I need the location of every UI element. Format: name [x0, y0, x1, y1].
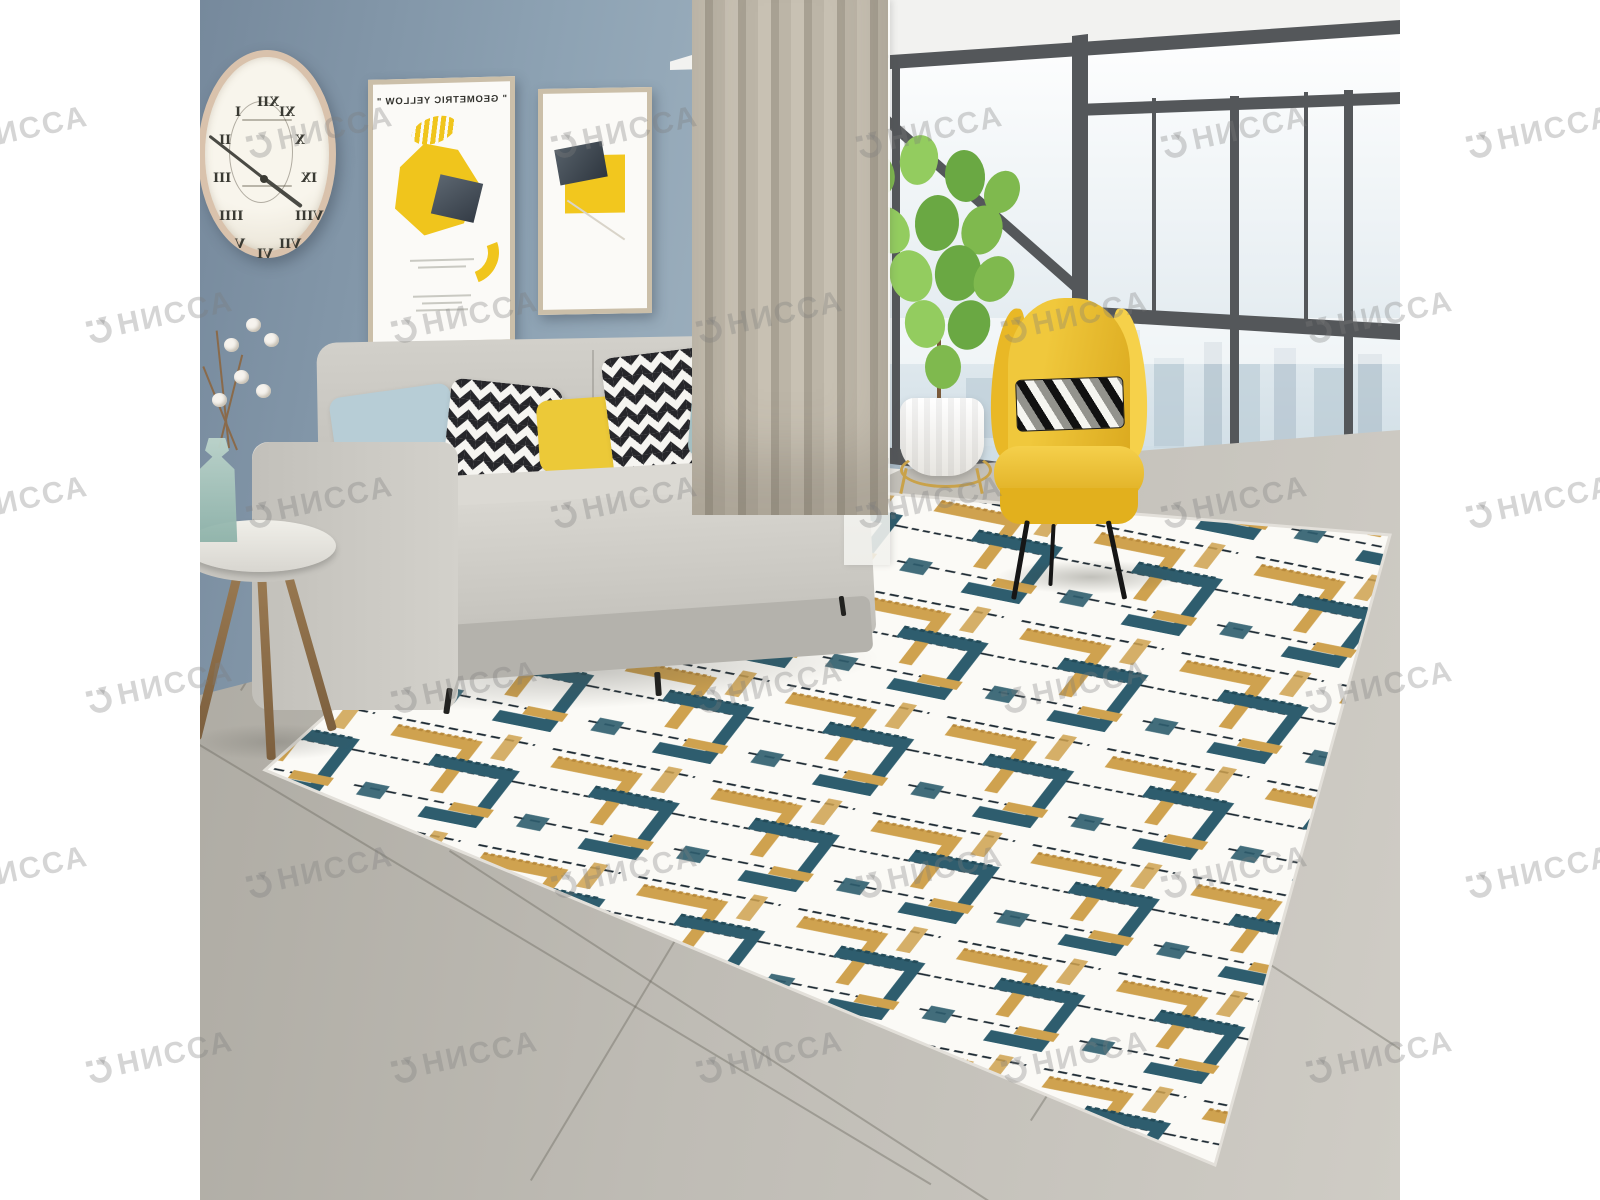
poster-title: " GEOMETRIC YELLOW ": [373, 93, 510, 108]
chair-cube-pillow: [1015, 376, 1125, 432]
clock-numeral: III: [213, 171, 231, 186]
rug-product-photo-page: XIIIIIIIIIIIIVVIVIIVIIIIXXXI " GEOMETRIC…: [0, 0, 1600, 1200]
watermark: НИССА: [0, 100, 91, 164]
clock-numeral: X: [295, 133, 305, 148]
fig-leaf: [925, 345, 961, 389]
watermark-logo-icon: [84, 1054, 115, 1085]
clock-numeral: VII: [279, 237, 301, 252]
watermark-text: НИССА: [0, 840, 91, 898]
living-room-photo: XIIIIIIIIIIIIVVIVIIVIIIIXXXI " GEOMETRIC…: [200, 0, 1400, 1200]
curtain: [692, 0, 888, 515]
poster-caption-line: [416, 308, 468, 311]
watermark: НИССА: [1463, 100, 1600, 164]
chair-apron: [1000, 488, 1138, 524]
watermark: НИССА: [0, 470, 91, 534]
clock-numeral: XII: [257, 95, 279, 110]
watermark-logo-icon: [1464, 129, 1495, 160]
watermark: НИССА: [0, 840, 91, 904]
clock-numeral: XI: [279, 105, 295, 120]
cotton-ball: [224, 338, 239, 352]
poster-geometric-yellow: " GEOMETRIC YELLOW ": [368, 76, 515, 348]
clock-numeral: V: [235, 237, 245, 252]
chair-leg: [1011, 520, 1030, 600]
clock-numeral: I: [235, 105, 241, 120]
pot-stand-ring: [900, 452, 992, 488]
watermark-logo-icon: [1464, 499, 1495, 530]
cotton-ball: [212, 393, 227, 407]
chair-leg: [1048, 524, 1055, 586]
poster-caption-line: [422, 301, 462, 304]
poster-caption-line: [413, 294, 471, 298]
clock-numeral: VIII: [295, 209, 323, 224]
cotton-ball: [264, 333, 279, 347]
cotton-ball: [246, 318, 261, 332]
watermark-text: НИССА: [1494, 840, 1600, 898]
cotton-ball: [234, 370, 249, 384]
yellow-armchair: [990, 298, 1150, 588]
clock-brand-text-line: [242, 185, 292, 187]
watermark-text: НИССА: [0, 100, 91, 158]
watermark-logo-icon: [1464, 869, 1495, 900]
watermark-logo-icon: [84, 684, 115, 715]
watermark-text: НИССА: [1494, 470, 1600, 528]
wall-clock: XIIIIIIIIIIIIVVIVIIVIIIIXXXI: [200, 50, 336, 258]
cotton-ball: [256, 384, 271, 398]
clock-numeral: IX: [301, 171, 317, 186]
watermark-text: НИССА: [1494, 100, 1600, 158]
watermark: НИССА: [1463, 840, 1600, 904]
clock-center-dot: [260, 175, 268, 183]
watermark: НИССА: [1463, 470, 1600, 534]
clock-numeral: IIII: [219, 209, 243, 224]
watermark-text: НИССА: [0, 470, 91, 528]
chair-leg: [1106, 520, 1128, 599]
poster-art-crescent: [408, 110, 460, 150]
clock-numeral: VI: [257, 247, 273, 262]
poster-yellow-square: [538, 87, 652, 315]
watermark-logo-icon: [84, 314, 115, 345]
